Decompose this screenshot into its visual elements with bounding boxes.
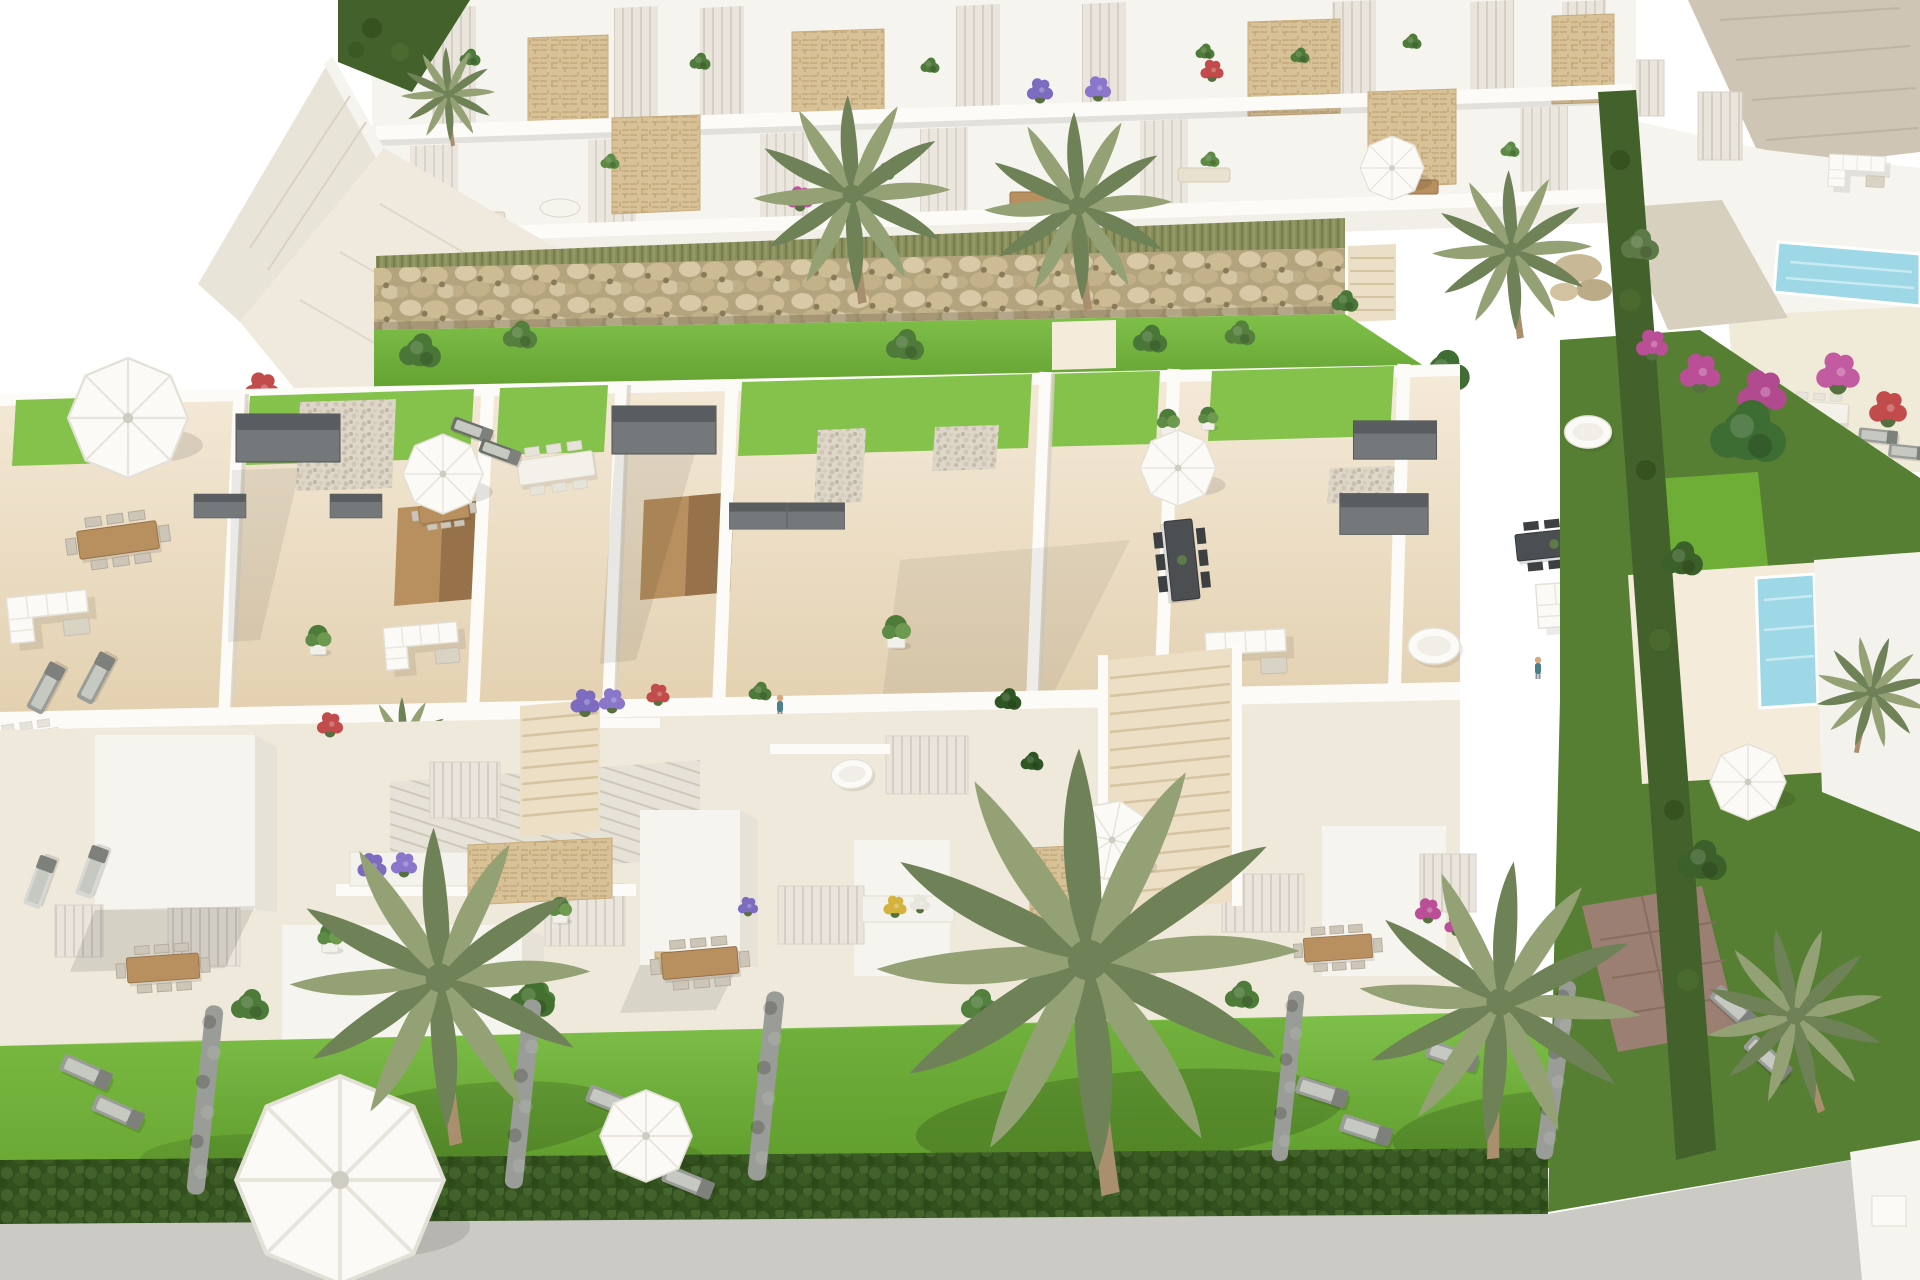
stone-clad-panel [528, 35, 608, 124]
pergola-instance [787, 503, 844, 529]
pergola-instance [236, 414, 340, 462]
outdoor-kitchen [814, 428, 866, 504]
pergola-instance [729, 503, 786, 529]
pergola-instance [330, 494, 382, 518]
garden-path [1052, 320, 1116, 370]
pergola-instance [194, 494, 246, 518]
pergola-instance [1340, 494, 1428, 535]
pergola-instance [1353, 421, 1436, 459]
architectural-render [0, 0, 1920, 1280]
pergola-instance [612, 406, 716, 454]
staircase [520, 699, 600, 837]
render-canvas [0, 0, 1920, 1280]
pool [1756, 574, 1818, 708]
artificial-lawn-patch [1038, 371, 1160, 447]
stone-clad-panel [612, 115, 700, 214]
stone-clad-panel [792, 29, 884, 122]
apartment-block [372, 0, 1636, 264]
outdoor-kitchen [932, 425, 999, 471]
round-table [540, 199, 580, 217]
